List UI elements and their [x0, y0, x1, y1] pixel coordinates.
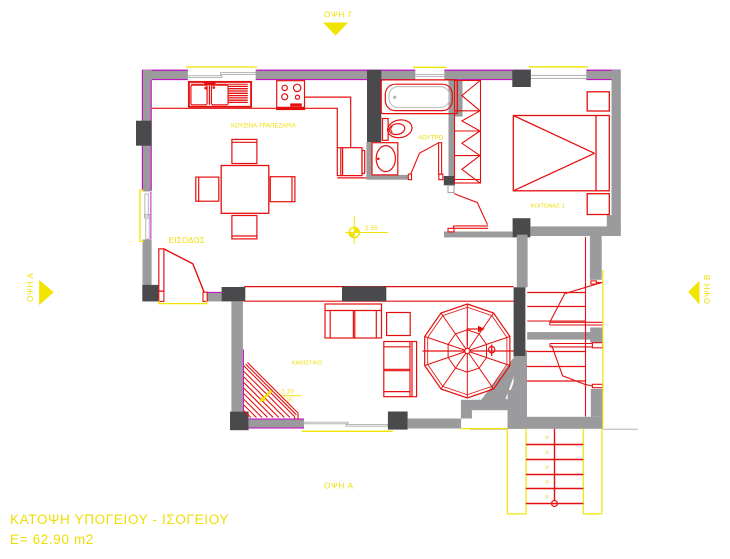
svg-text:ΟΨΗ Γ: ΟΨΗ Γ: [324, 11, 353, 20]
svg-text:ΚΑΘΙΣΤΙΚΟ: ΚΑΘΙΣΤΙΚΟ: [292, 361, 323, 367]
svg-text:ΟΨΗ Α: ΟΨΗ Α: [26, 272, 35, 302]
svg-text:-2.70: -2.70: [279, 390, 295, 396]
svg-text:2.55: 2.55: [365, 226, 378, 232]
svg-text:ΕΙΣΟΔΟΣ: ΕΙΣΟΔΟΣ: [169, 236, 205, 245]
svg-text:ΚΑΤΟΨΗ ΥΠΟΓΕΙΟΥ - ΙΣΟΓΕΙΟΥ: ΚΑΤΟΨΗ ΥΠΟΓΕΙΟΥ - ΙΣΟΓΕΙΟΥ: [10, 512, 229, 527]
svg-text:ΚΟΥΖΙΝΑ-ΤΡΑΠΕΖΑΡΙΑ: ΚΟΥΖΙΝΑ-ΤΡΑΠΕΖΑΡΙΑ: [231, 124, 296, 130]
svg-text:ΟΨΗ Α: ΟΨΗ Α: [324, 482, 354, 491]
svg-text:ΛΟΥΤΡΟ: ΛΟΥΤΡΟ: [418, 134, 444, 141]
svg-text:ΟΨΗ Β: ΟΨΗ Β: [703, 274, 712, 304]
svg-text:ΚΟΙΤΩΝΑΣ 1: ΚΟΙΤΩΝΑΣ 1: [531, 203, 565, 209]
svg-text:E= 62.90 m2: E= 62.90 m2: [10, 532, 94, 547]
svg-text:15: 15: [287, 398, 293, 404]
